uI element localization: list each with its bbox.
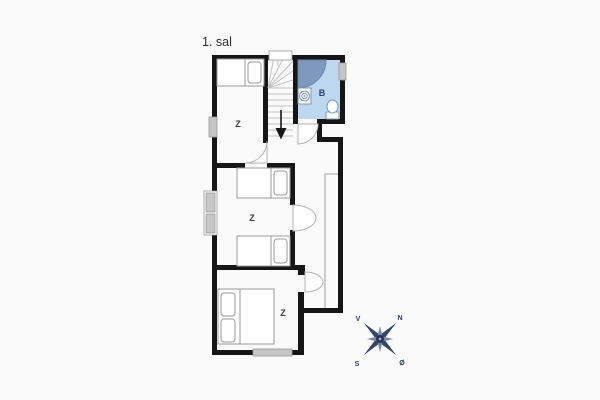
window-icon — [339, 63, 346, 80]
door-swing-icon — [245, 141, 267, 163]
floor-plan-page: B — [0, 0, 600, 400]
compass-label-south: S — [355, 361, 360, 368]
door-swing-icon — [305, 272, 323, 292]
compass-label-west: V — [356, 316, 361, 323]
door-swing-icon — [298, 124, 318, 144]
wall-middle-right-upper — [290, 163, 295, 205]
window-icon — [253, 349, 292, 356]
door-swing-icon — [293, 205, 316, 231]
window-icon — [209, 117, 217, 137]
wall-bottom-bedroom-right — [298, 292, 304, 355]
bathroom: B — [298, 60, 340, 119]
furniture — [217, 59, 290, 344]
room-label: Z — [249, 213, 255, 223]
wall-door-stub — [298, 270, 305, 275]
single-bed-icon — [217, 59, 264, 86]
room-label: Z — [235, 119, 241, 129]
wall-middle-right-lower — [290, 230, 295, 270]
page-title: 1. sal — [202, 35, 232, 49]
compass-center-dot — [379, 338, 382, 341]
compass-label-east: Ø — [399, 360, 405, 367]
ceiling-height-line — [325, 174, 338, 308]
sink-icon — [298, 88, 311, 104]
room-label: Z — [280, 308, 286, 318]
wall-bathroom-left — [293, 55, 298, 124]
compass-label-north: N — [397, 315, 402, 322]
stairs-icon — [268, 57, 293, 140]
window-icon — [269, 51, 292, 60]
single-bed-icon — [237, 168, 290, 198]
floor-plan-drawing: B — [0, 0, 600, 400]
wall-right — [338, 137, 343, 313]
toilet-icon — [326, 100, 339, 119]
compass-rose-icon: V N S Ø — [355, 315, 406, 368]
wall-landing-left — [212, 163, 245, 168]
wall-corridor-bottom — [298, 308, 343, 313]
window-icon — [204, 191, 217, 235]
bathroom-label: B — [319, 88, 326, 98]
double-bed-icon — [218, 289, 274, 344]
stairs-down-arrow-icon — [276, 110, 287, 140]
single-bed-icon — [237, 236, 290, 266]
